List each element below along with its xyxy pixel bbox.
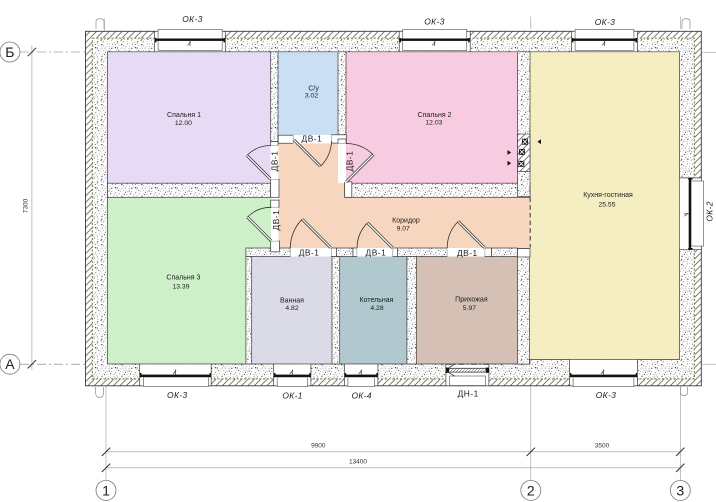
svg-text:25.55: 25.55 <box>598 201 615 208</box>
svg-text:С/у: С/у <box>308 85 319 92</box>
svg-text:3: 3 <box>676 482 684 498</box>
svg-text:3500: 3500 <box>595 443 610 450</box>
svg-text:Спальня 2: Спальня 2 <box>418 112 452 119</box>
svg-text:ОК-4: ОК-4 <box>351 391 372 401</box>
svg-text:ОК-3: ОК-3 <box>424 17 445 27</box>
svg-text:ОК-3: ОК-3 <box>596 390 617 400</box>
svg-text:2: 2 <box>527 482 535 498</box>
svg-text:Спальня 1: Спальня 1 <box>167 112 201 119</box>
svg-text:Б: Б <box>5 44 14 60</box>
svg-text:9900: 9900 <box>311 443 326 450</box>
svg-text:ОК-1: ОК-1 <box>282 391 303 401</box>
svg-text:А: А <box>5 356 15 372</box>
svg-text:Прихожая: Прихожая <box>455 297 488 304</box>
svg-text:ДВ-1: ДВ-1 <box>457 248 478 258</box>
svg-text:13.39: 13.39 <box>172 283 189 290</box>
svg-text:ДВ-1: ДВ-1 <box>271 210 281 231</box>
svg-text:ДВ-1: ДВ-1 <box>269 151 279 172</box>
svg-text:Коридор: Коридор <box>392 217 420 224</box>
svg-text:ДН-1: ДН-1 <box>458 388 479 398</box>
svg-text:Котельная: Котельная <box>360 297 394 304</box>
svg-text:ДВ-1: ДВ-1 <box>299 247 320 257</box>
svg-text:ОК-3: ОК-3 <box>167 390 188 400</box>
svg-text:3.02: 3.02 <box>305 93 318 100</box>
svg-text:ОК-3: ОК-3 <box>595 17 616 27</box>
svg-text:ДВ-1: ДВ-1 <box>366 247 387 257</box>
svg-text:5.97: 5.97 <box>463 305 476 312</box>
svg-text:4.82: 4.82 <box>285 305 298 312</box>
svg-text:13400: 13400 <box>349 459 367 466</box>
svg-text:9.07: 9.07 <box>397 226 410 233</box>
svg-text:Кухня-гостиная: Кухня-гостиная <box>583 192 633 199</box>
svg-text:Ванная: Ванная <box>280 297 304 304</box>
svg-text:12.00: 12.00 <box>175 120 192 127</box>
svg-text:1: 1 <box>102 482 110 498</box>
svg-text:7300: 7300 <box>23 198 30 213</box>
svg-text:ОК-2: ОК-2 <box>705 201 715 222</box>
svg-text:ДВ-1: ДВ-1 <box>302 134 323 144</box>
svg-text:Спальня 3: Спальня 3 <box>166 274 200 281</box>
svg-text:ОК-3: ОК-3 <box>182 14 203 24</box>
svg-text:12.03: 12.03 <box>425 120 442 127</box>
svg-text:ДВ-1: ДВ-1 <box>345 151 355 172</box>
svg-text:4.28: 4.28 <box>370 305 383 312</box>
